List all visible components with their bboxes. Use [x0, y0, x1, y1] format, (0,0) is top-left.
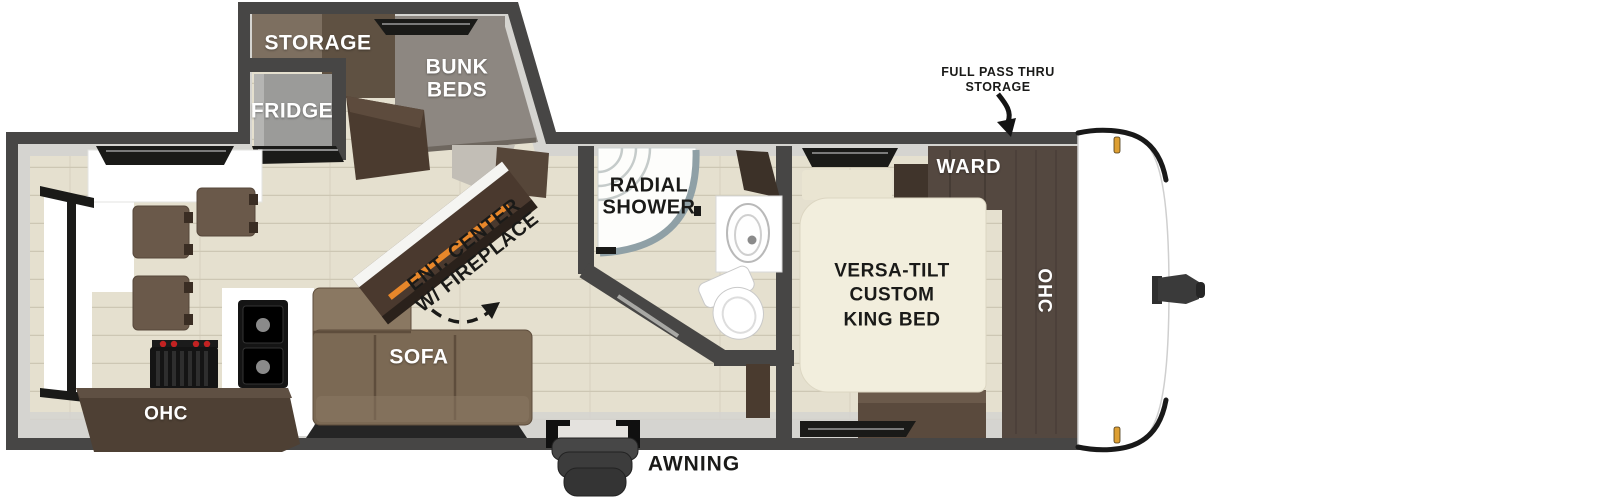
bedroom-window-bottom: [800, 421, 916, 437]
headboard: [802, 170, 892, 200]
bedroom-divider-wall: [776, 146, 792, 438]
dinette-window: [96, 146, 234, 165]
pass-thru-label: FULL PASS THRU STORAGE: [941, 65, 1054, 95]
hall-cabinet: [746, 364, 770, 418]
kitchen-sink: [238, 300, 288, 388]
bathroom-left-wall: [578, 146, 594, 274]
fridge-front: [252, 146, 344, 164]
pass-thru-arrow: [997, 94, 1016, 137]
king-bed-label: VERSA-TILT CUSTOM KING BED: [834, 260, 949, 333]
kitchen-ohc-label: OHC: [144, 405, 188, 426]
floorplan: STORAGE BUNK BEDS FRIDGE ENT. CENTER W/ …: [0, 0, 1600, 502]
bunk-beds-label: BUNK BEDS: [426, 56, 489, 101]
entry-steps: [552, 438, 638, 496]
bunk-window: [374, 19, 478, 35]
rear-window: [40, 186, 94, 403]
clearance-light-bottom: [1114, 427, 1120, 443]
awning-label: AWNING: [648, 454, 740, 477]
bedroom-window-top: [802, 148, 898, 167]
floorplan-drawing: [0, 0, 1600, 502]
stove: [150, 340, 218, 390]
clearance-light-top: [1114, 137, 1120, 153]
bedroom-ohc-label: OHC: [1033, 268, 1054, 313]
ward-label: WARD: [936, 157, 1001, 179]
radial-shower-label: RADIAL SHOWER: [603, 175, 696, 218]
fridge-label: FRIDGE: [251, 101, 333, 124]
sofa-label: SOFA: [389, 347, 448, 370]
hitch: [1152, 274, 1205, 304]
storage-label: STORAGE: [265, 33, 372, 56]
